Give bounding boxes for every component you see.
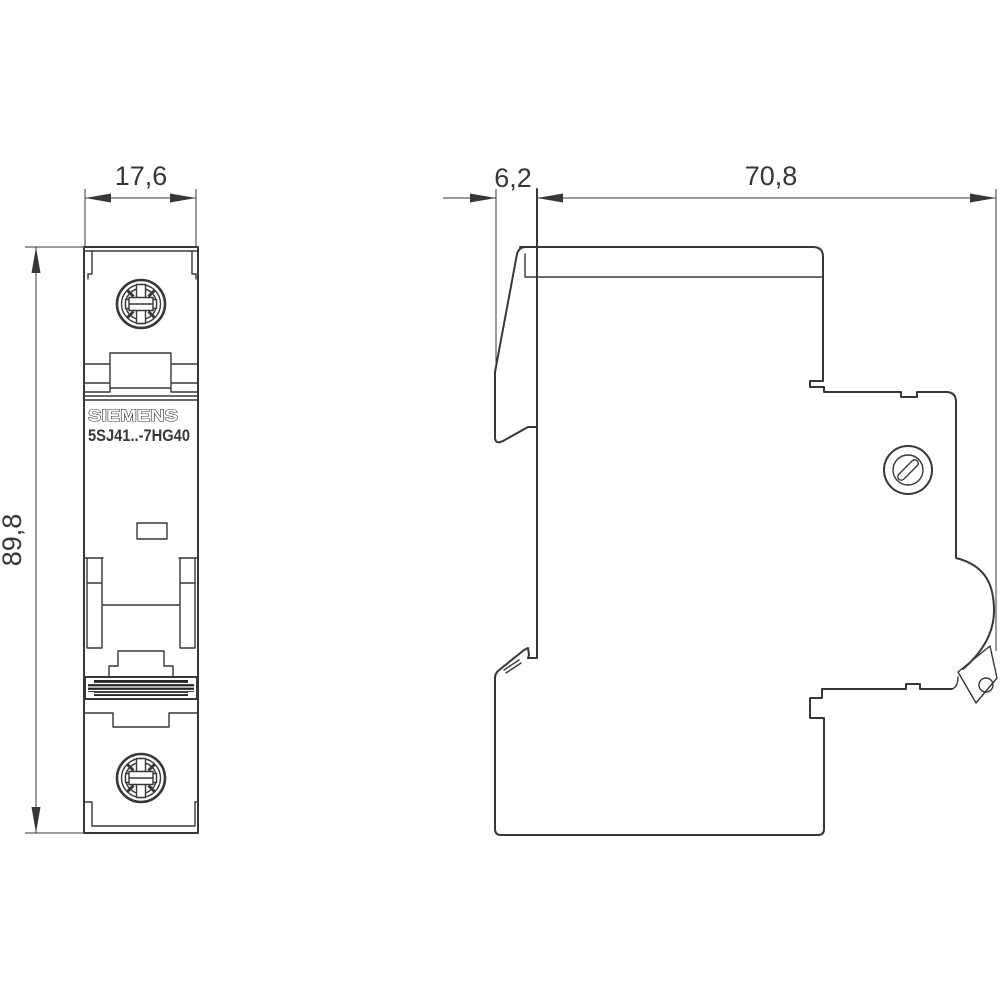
front-bottom-recess (84, 802, 198, 826)
arrowhead-lever-left (470, 194, 496, 203)
dimension-front-height-label: 89,8 (0, 514, 27, 567)
mounting-screw-side (884, 446, 932, 494)
front-body-outline (84, 247, 198, 833)
model-label: 5SJ41..-7HG40 (88, 427, 190, 445)
dimension-front-width-label: 17,6 (115, 161, 168, 191)
side-view (495, 189, 997, 835)
brand-label: SIEMENS (88, 406, 178, 425)
arrowhead-lever-right-depth-left (537, 194, 563, 203)
front-view: SIEMENS 5SJ41..-7HG40 (84, 247, 198, 833)
front-toggle-rails (84, 558, 198, 648)
toggle-grip (85, 677, 197, 699)
dimension-lever-protrusion-label: 6,2 (494, 163, 532, 193)
arrowhead-depth-right (970, 194, 996, 203)
din-clip-joint (952, 677, 958, 689)
dimension-annotations: 17,6 6,2 70,8 89,8 (0, 161, 996, 833)
dimension-lines (36, 198, 996, 833)
terminal-screw-bottom (117, 754, 165, 802)
arrowhead-width-right (170, 194, 196, 203)
terminal-screw-top (117, 280, 165, 328)
front-midsection-steps (84, 353, 198, 400)
arrowhead-height-top (32, 247, 41, 273)
din-clip-tab-slot (504, 660, 521, 673)
front-lower-recess (84, 713, 198, 727)
side-body-outline (495, 189, 994, 835)
toggle-lever-front (109, 651, 173, 677)
front-terminal-opening (88, 251, 196, 279)
arrowhead-height-bottom (32, 807, 41, 833)
side-cap-lip (525, 254, 823, 277)
dimension-body-depth-label: 70,8 (745, 161, 798, 191)
technical-drawing: SIEMENS 5SJ41..-7HG40 (0, 0, 1000, 1000)
arrowhead-width-left (85, 194, 111, 203)
indicator-window (137, 523, 167, 539)
